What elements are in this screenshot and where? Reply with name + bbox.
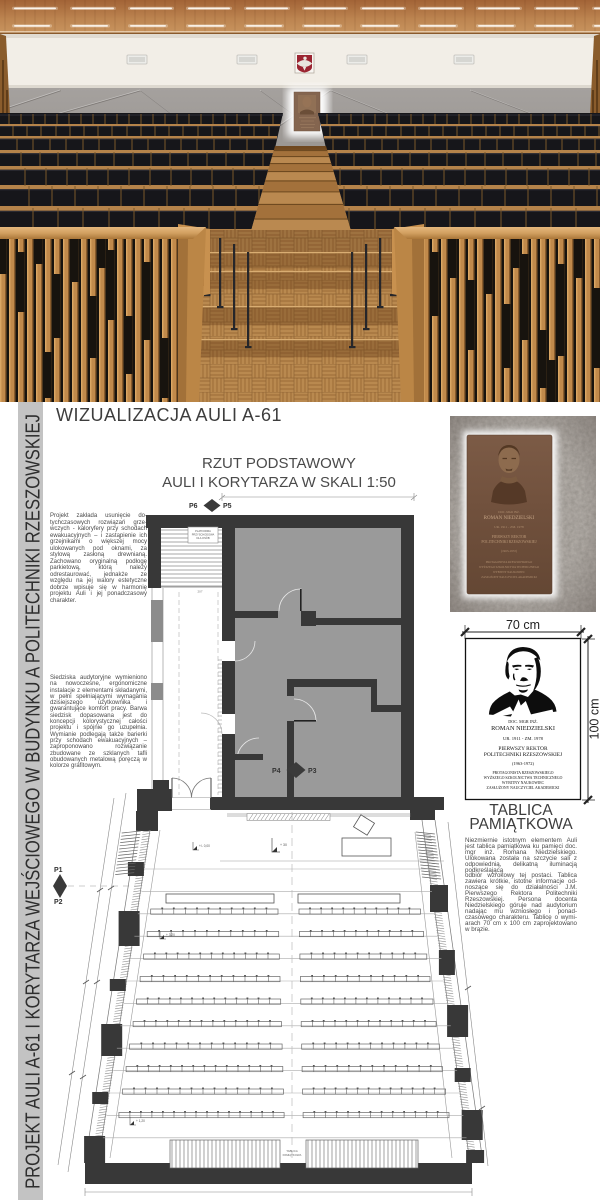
svg-text:POLITECHNIKI RZESZOWSKIEJ: POLITECHNIKI RZESZOWSKIEJ xyxy=(481,540,537,544)
svg-text:WYBITNY NAUKOWIEC: WYBITNY NAUKOWIEC xyxy=(493,570,525,574)
svg-text:WYŻSZEGO SZKOLNICTWA TECHNICZN: WYŻSZEGO SZKOLNICTWA TECHNICZNEGO xyxy=(479,565,539,569)
svg-text:PROTAGONISTA RZESZOWSKIEGO: PROTAGONISTA RZESZOWSKIEGO xyxy=(492,771,553,775)
svg-text:PLATFORMA: PLATFORMA xyxy=(195,529,211,533)
svg-text:P5: P5 xyxy=(223,503,232,510)
svg-text:UR. 1911 - ZM. 1978: UR. 1911 - ZM. 1978 xyxy=(494,525,524,529)
svg-text:PIERWSZY REKTOR: PIERWSZY REKTOR xyxy=(492,535,527,539)
svg-text:P3: P3 xyxy=(308,768,317,775)
svg-text:+ 1,20: + 1,20 xyxy=(136,1119,145,1123)
svg-text:70 cm: 70 cm xyxy=(506,618,540,632)
svg-text:+ 30: + 30 xyxy=(280,843,287,847)
svg-text:207: 207 xyxy=(197,590,202,594)
svg-text:P2: P2 xyxy=(54,899,63,906)
svg-text:DOC. MGR INŻ.: DOC. MGR INŻ. xyxy=(498,509,519,514)
svg-text:ROMAN NIEDZIELSKI: ROMAN NIEDZIELSKI xyxy=(491,725,555,732)
svg-text:WYŻSZEGO SZKOLNICTWA TECHNICZN: WYŻSZEGO SZKOLNICTWA TECHNICZNEGO xyxy=(484,775,563,780)
svg-text:+ 3,20: + 3,20 xyxy=(166,933,175,937)
svg-text:PRZYSCHODOWA: PRZYSCHODOWA xyxy=(192,532,215,536)
svg-text:P4: P4 xyxy=(272,768,281,775)
svg-text:P6: P6 xyxy=(189,503,198,510)
svg-text:PAMIĄTKOWA: PAMIĄTKOWA xyxy=(283,1153,302,1157)
svg-text:WYBITNY NAUKOWIEC: WYBITNY NAUKOWIEC xyxy=(502,781,545,785)
svg-text:(1963-1972): (1963-1972) xyxy=(501,549,517,553)
svg-text:POLITECHNIKI RZESZOWSKIEJ: POLITECHNIKI RZESZOWSKIEJ xyxy=(484,752,562,758)
svg-text:ZASŁUŻONY NAUCZYCIEL AKADEMICK: ZASŁUŻONY NAUCZYCIEL AKADEMICKI xyxy=(487,785,561,790)
svg-text:P1: P1 xyxy=(54,867,63,874)
svg-text:ZASŁUŻONY NAUCZYCIEL AKADEMICK: ZASŁUŻONY NAUCZYCIEL AKADEMICKI xyxy=(481,575,537,579)
svg-text:ROMAN NIEDZIELSKI: ROMAN NIEDZIELSKI xyxy=(484,516,535,521)
svg-text:PROTAGONISTA RZESZOWSKIEGO: PROTAGONISTA RZESZOWSKIEGO xyxy=(486,560,533,564)
svg-text:DOC. MGR INŻ.: DOC. MGR INŻ. xyxy=(508,719,538,724)
svg-text:(1963-1972): (1963-1972) xyxy=(512,761,534,766)
svg-text:+/- 0,00: +/- 0,00 xyxy=(199,844,210,848)
svg-text:UR. 1911 - ZM. 1978: UR. 1911 - ZM. 1978 xyxy=(503,736,544,741)
svg-text:100 cm: 100 cm xyxy=(588,699,600,740)
